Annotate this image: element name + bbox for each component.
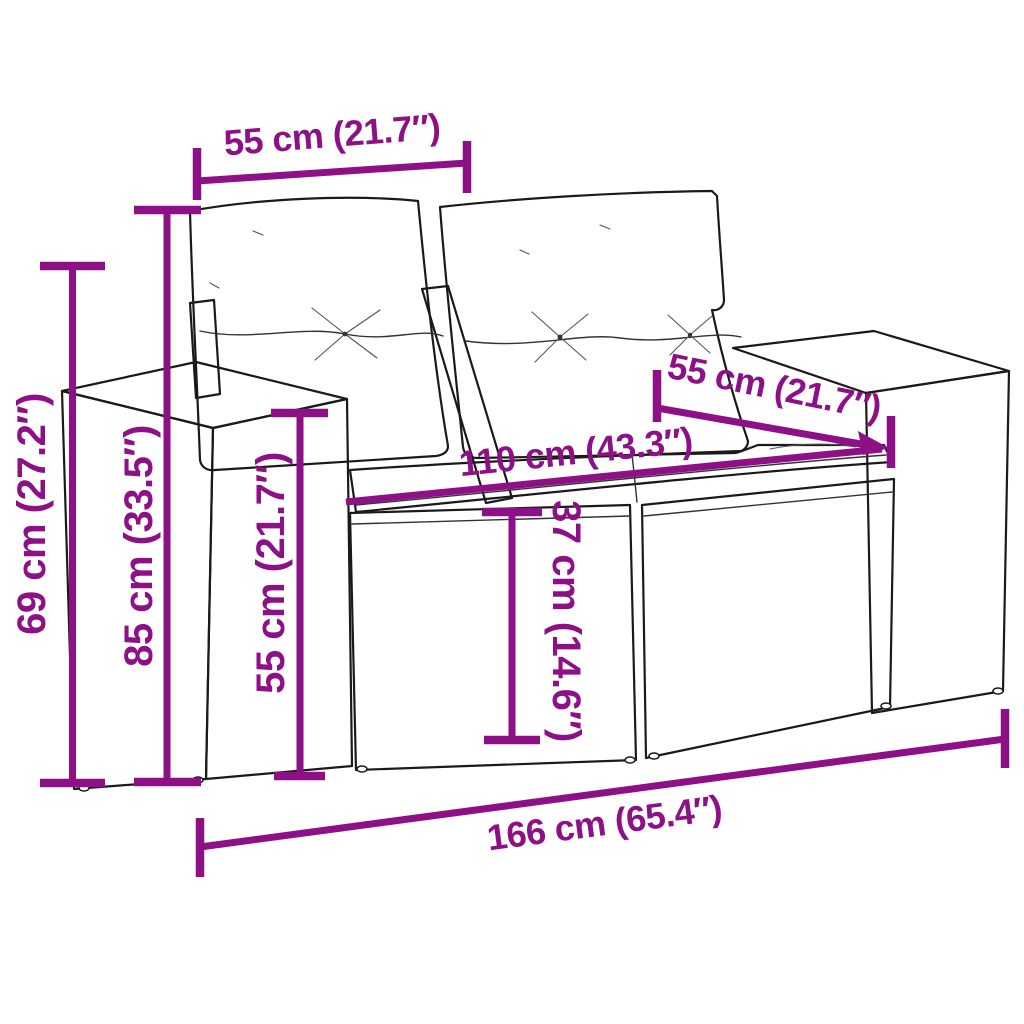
dim-label-overall-width: 166 cm (65.4″)	[485, 787, 725, 859]
sofa-feet	[79, 688, 1003, 791]
back-cushion-left	[190, 198, 448, 470]
dim-label-back-cushion-width: 55 cm (21.7″)	[222, 106, 441, 164]
seat-base	[350, 479, 894, 770]
dimension-annotations: 55 cm (21.7″) 55 cm (21.7″) 110 cm (43.3…	[10, 106, 1005, 877]
left-armrest	[62, 362, 352, 789]
sofa-illustration	[62, 191, 1009, 791]
dim-backrest-height: 85 cm (33.5″)	[117, 210, 201, 782]
dim-label-overall-height: 69 cm (27.2″)	[10, 393, 54, 635]
diagram-canvas: 55 cm (21.7″) 55 cm (21.7″) 110 cm (43.3…	[0, 0, 1024, 1024]
dim-armrest-height: 55 cm (21.7″)	[249, 413, 328, 776]
dim-back-cushion-width: 55 cm (21.7″)	[197, 106, 467, 200]
sofa-dimension-diagram: 55 cm (21.7″) 55 cm (21.7″) 110 cm (43.3…	[0, 0, 1024, 1024]
dim-seat-height: 37 cm (14.6″)	[482, 500, 588, 742]
dim-overall-width: 166 cm (65.4″)	[200, 709, 1005, 877]
dim-overall-height: 69 cm (27.2″)	[10, 266, 105, 783]
dim-label-armrest-height: 55 cm (21.7″)	[249, 452, 293, 694]
dim-label-seat-height: 37 cm (14.6″)	[544, 500, 588, 742]
dim-label-backrest-height: 85 cm (33.5″)	[117, 425, 161, 667]
